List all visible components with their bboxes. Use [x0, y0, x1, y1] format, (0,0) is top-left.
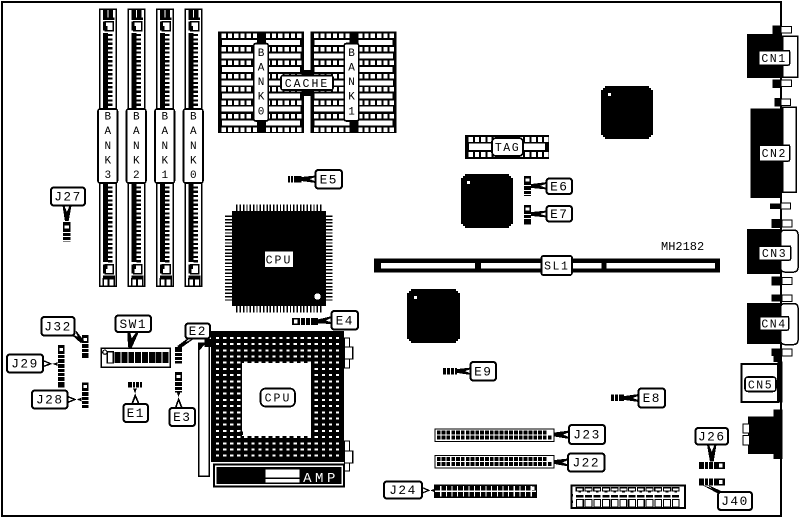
- svg-text:CN1: CN1: [761, 53, 786, 66]
- svg-text:J26: J26: [698, 429, 726, 444]
- svg-text:A: A: [190, 126, 197, 138]
- svg-text:B: B: [348, 48, 355, 60]
- svg-text:K: K: [133, 155, 140, 167]
- svg-text:CN5: CN5: [748, 379, 773, 392]
- svg-text:0: 0: [258, 106, 265, 118]
- svg-text:CN2: CN2: [762, 148, 787, 161]
- svg-text:K: K: [348, 92, 355, 104]
- svg-text:N: N: [104, 141, 111, 153]
- svg-text:K: K: [161, 155, 168, 167]
- svg-text:N: N: [258, 77, 265, 89]
- svg-text:CPU: CPU: [266, 255, 293, 268]
- svg-text:TAG: TAG: [495, 142, 520, 155]
- svg-text:B: B: [161, 111, 168, 123]
- svg-text:N: N: [190, 141, 197, 153]
- svg-text:CPU: CPU: [265, 393, 292, 406]
- svg-text:MH2182: MH2182: [661, 240, 704, 254]
- svg-text:J40: J40: [721, 494, 749, 509]
- svg-text:E6: E6: [550, 179, 568, 194]
- svg-text:E7: E7: [550, 207, 568, 222]
- svg-text:J23: J23: [573, 428, 601, 443]
- svg-text:B: B: [258, 48, 265, 60]
- svg-text:3: 3: [104, 170, 111, 182]
- svg-text:AMP: AMP: [303, 471, 339, 487]
- svg-text:SL1: SL1: [544, 261, 569, 274]
- svg-text:E9: E9: [474, 364, 492, 379]
- svg-text:2: 2: [133, 170, 140, 182]
- svg-text:CN4: CN4: [761, 318, 786, 331]
- svg-text:SW1: SW1: [119, 317, 147, 332]
- svg-text:E4: E4: [336, 313, 354, 328]
- svg-text:J32: J32: [44, 319, 72, 334]
- svg-text:E5: E5: [320, 172, 338, 187]
- svg-text:0: 0: [190, 170, 197, 182]
- svg-text:E2: E2: [189, 324, 207, 339]
- svg-text:E3: E3: [173, 410, 191, 425]
- svg-text:E1: E1: [127, 406, 145, 421]
- svg-text:B: B: [133, 111, 140, 123]
- svg-text:A: A: [104, 126, 111, 138]
- svg-text:E8: E8: [643, 391, 661, 406]
- svg-text:1: 1: [348, 106, 355, 118]
- svg-text:A: A: [133, 126, 140, 138]
- svg-text:J28: J28: [36, 393, 64, 408]
- svg-text:K: K: [190, 155, 197, 167]
- svg-text:CACHE: CACHE: [285, 78, 330, 91]
- svg-text:B: B: [104, 111, 111, 123]
- svg-text:CN3: CN3: [762, 248, 787, 261]
- svg-text:J22: J22: [572, 456, 600, 471]
- svg-text:N: N: [133, 141, 140, 153]
- svg-text:A: A: [348, 63, 355, 75]
- svg-text:N: N: [161, 141, 168, 153]
- svg-text:1: 1: [161, 170, 168, 182]
- svg-text:K: K: [104, 155, 111, 167]
- svg-text:B: B: [190, 111, 197, 123]
- svg-text:A: A: [161, 126, 168, 138]
- svg-text:A: A: [258, 63, 265, 75]
- svg-text:N: N: [348, 77, 355, 89]
- svg-text:J24: J24: [389, 483, 417, 498]
- svg-text:J27: J27: [54, 190, 82, 205]
- svg-text:K: K: [258, 92, 265, 104]
- svg-text:J29: J29: [11, 357, 39, 372]
